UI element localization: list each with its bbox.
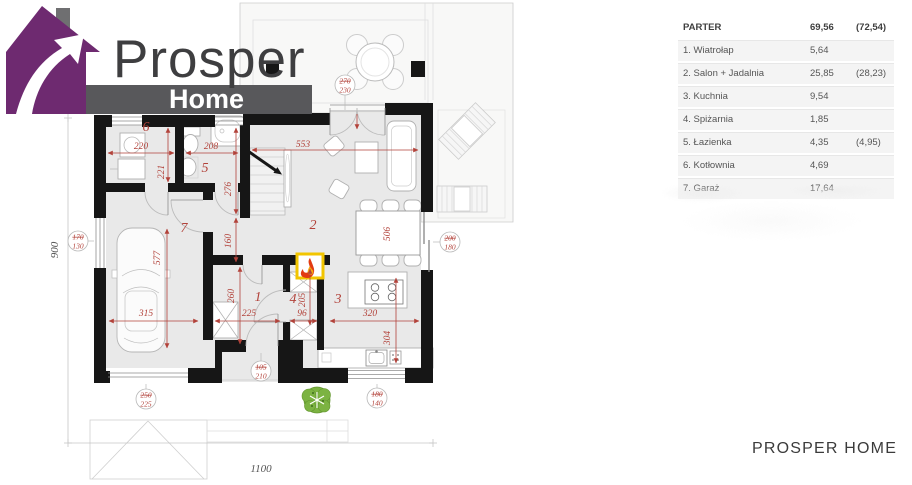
dim-label-315: 315 (138, 309, 154, 319)
table-row: 4. Spiżarnia 1,85 (678, 109, 894, 132)
svg-text:230: 230 (339, 86, 351, 95)
logo-title: Prosper (113, 34, 306, 86)
watermark-smudge (656, 186, 912, 244)
kitchen-island (348, 272, 407, 308)
dim-label-553: 553 (296, 140, 311, 150)
room-area: 9,54 (810, 87, 829, 107)
dim-label-208: 208 (204, 142, 219, 152)
table-row: 5. Łazienka 4,35 (4,95) (678, 132, 894, 155)
room-label-1: 1 (255, 290, 262, 305)
stairs (245, 148, 291, 215)
dim-label-320: 320 (362, 309, 378, 319)
svg-text:200: 200 (444, 234, 456, 243)
brand-footer: PROSPER HOME (752, 440, 897, 458)
room-name: 6. Kotłownia (683, 160, 735, 171)
marker-250-225: 250 225 (136, 389, 156, 409)
room-name: 3. Kuchnia (683, 91, 728, 102)
dim-label-506: 506 (383, 227, 393, 242)
dim-label-160: 160 (224, 234, 234, 249)
dim-label-205: 205 (298, 293, 308, 308)
room-label-4: 4 (290, 292, 297, 307)
table-row: 6. Kotłownia 4,69 (678, 155, 894, 178)
exterior-steps (207, 420, 348, 442)
marker-270-230: 270 230 (335, 75, 355, 95)
room-name: 2. Salon + Jadalnia (683, 68, 764, 79)
lounger (437, 186, 487, 212)
room-area-alt: (4,95) (856, 133, 881, 153)
room-name: 4. Spiżarnia (683, 114, 733, 125)
dim-label-221: 221 (157, 165, 167, 179)
room-area-alt: (28,23) (856, 64, 886, 84)
table-row: 1. Wiatrołap 5,64 (678, 40, 894, 63)
room-label-6: 6 (143, 120, 150, 135)
dim-label-1100: 1100 (250, 463, 272, 475)
table-header-area-alt: (72,54) (856, 17, 886, 38)
svg-text:180: 180 (444, 243, 456, 252)
table-header-name: PARTER (683, 22, 721, 33)
svg-text:270: 270 (339, 77, 351, 86)
room-label-2: 2 (310, 218, 317, 233)
svg-text:170: 170 (72, 233, 84, 242)
marker-170-130: 170 130 (68, 231, 88, 251)
table-row: 3. Kuchnia 9,54 (678, 86, 894, 109)
marker-200-180: 200 180 (440, 232, 460, 252)
room-label-7: 7 (181, 221, 189, 236)
dim-label-220: 220 (134, 142, 149, 152)
roof-outline (90, 420, 207, 479)
wardrobe (213, 302, 238, 338)
marker-180-140: 180 140 (367, 388, 387, 408)
room-name: 5. Łazienka (683, 137, 732, 148)
room-area: 25,85 (810, 64, 834, 84)
dim-label-900: 900 (49, 241, 61, 258)
room-name: 1. Wiatrołap (683, 45, 734, 56)
dim-label-225: 225 (242, 309, 257, 319)
svg-text:250: 250 (140, 391, 152, 400)
room-area: 1,85 (810, 110, 829, 130)
room-area: 4,69 (810, 156, 829, 176)
room-area: 4,35 (810, 133, 829, 153)
room-label-3: 3 (334, 292, 342, 307)
logo: Prosper Home (0, 0, 330, 120)
dim-label-260: 260 (227, 289, 237, 304)
marker-105-210: 105 210 (251, 361, 271, 381)
svg-text:225: 225 (140, 400, 152, 409)
table-header-area: 69,56 (810, 17, 834, 38)
svg-text:180: 180 (371, 390, 383, 399)
dim-label-304: 304 (383, 331, 393, 347)
dim-label-276: 276 (224, 182, 234, 197)
table-header-row: PARTER 69,56 (72,54) (678, 17, 894, 40)
coffee-table (355, 142, 378, 173)
svg-text:210: 210 (255, 372, 267, 381)
room-area: 5,64 (810, 41, 829, 61)
bush-icon (302, 387, 331, 413)
car (112, 228, 170, 352)
table-row: 2. Salon + Jadalnia 25,85 (28,23) (678, 63, 894, 86)
logo-subtitle: Home (46, 85, 312, 114)
sofa (387, 121, 416, 191)
kitchen-counter (318, 348, 433, 368)
room-label-5: 5 (202, 161, 209, 176)
svg-text:140: 140 (371, 399, 383, 408)
svg-text:105: 105 (255, 363, 267, 372)
terrace-column (411, 61, 425, 77)
dim-label-577: 577 (153, 250, 163, 266)
dim-label-96: 96 (297, 309, 307, 319)
svg-text:130: 130 (72, 242, 84, 251)
area-table: PARTER 69,56 (72,54) 1. Wiatrołap 5,64 2… (678, 17, 894, 201)
